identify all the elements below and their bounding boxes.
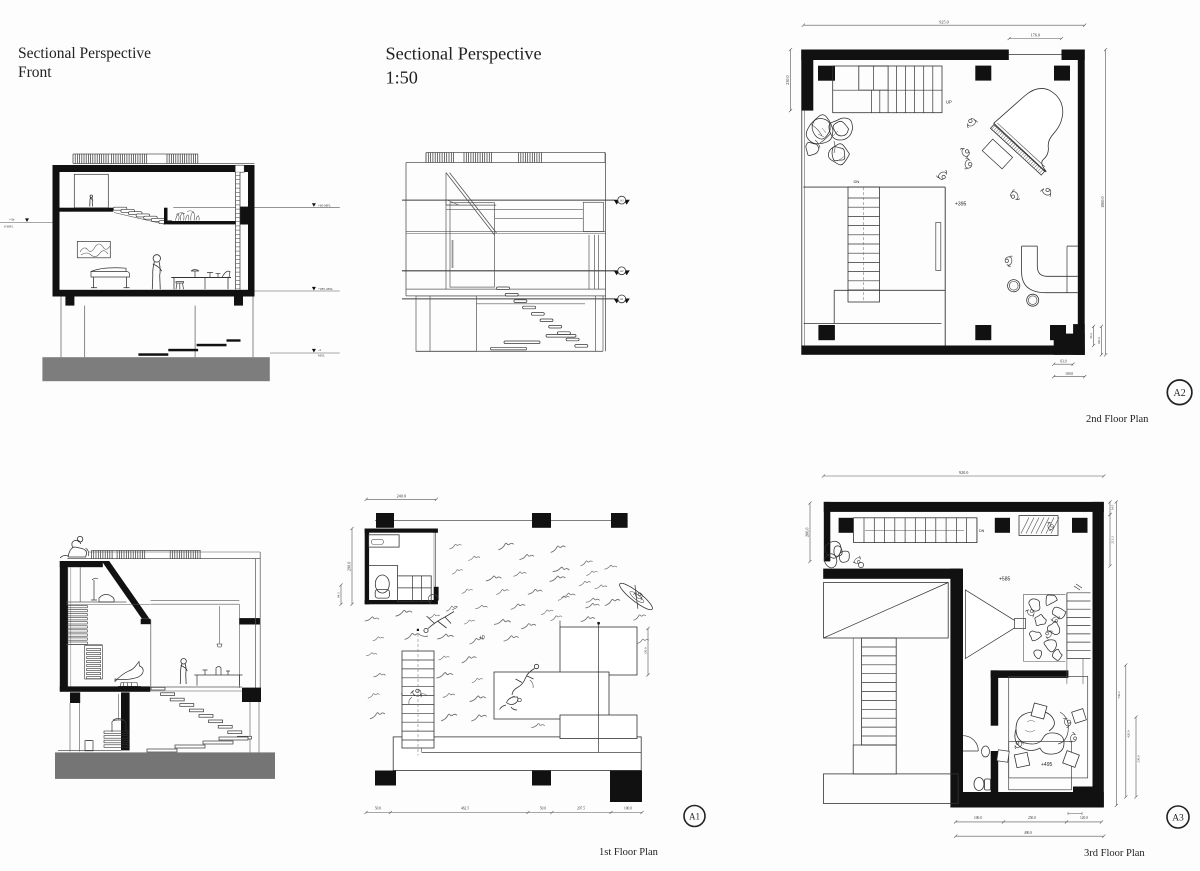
- svg-text:MSL: MSL: [318, 354, 325, 358]
- svg-text:Front: Front: [18, 64, 52, 81]
- svg-text:50.0: 50.0: [540, 807, 546, 811]
- svg-text:130.0: 130.0: [644, 647, 648, 655]
- svg-text:420.0: 420.0: [1126, 730, 1130, 738]
- svg-text:290.0: 290.0: [347, 562, 352, 571]
- svg-text:490.0: 490.0: [1024, 831, 1032, 835]
- svg-text:1st Floor Plan: 1st Floor Plan: [599, 847, 659, 858]
- svg-text:A1: A1: [689, 812, 700, 822]
- svg-text:+60 MFL: +60 MFL: [318, 203, 331, 207]
- svg-text:213.3: 213.3: [1111, 536, 1115, 544]
- svg-text:920.0: 920.0: [959, 470, 968, 475]
- svg-text:730.2: 730.2: [1117, 691, 1121, 699]
- svg-text:240.0: 240.0: [397, 494, 406, 499]
- svg-text:A2: A2: [620, 269, 624, 273]
- svg-text:462.5: 462.5: [461, 807, 469, 811]
- svg-text:+3h: +3h: [9, 218, 15, 222]
- svg-text:A1: A1: [620, 297, 624, 301]
- svg-text:250.0: 250.0: [1028, 816, 1036, 820]
- svg-text:54.5: 54.5: [1111, 504, 1115, 510]
- svg-text:+585: +585: [999, 577, 1010, 583]
- svg-text:30.4: 30.4: [1089, 333, 1093, 339]
- svg-text:A3: A3: [1172, 814, 1184, 824]
- svg-text:63.0: 63.0: [1060, 359, 1066, 363]
- svg-text:100.0: 100.0: [1097, 337, 1101, 345]
- svg-text:84.5: 84.5: [337, 592, 341, 598]
- svg-text:100.0: 100.0: [974, 816, 982, 820]
- svg-text:+495: +495: [1041, 762, 1052, 768]
- svg-text:2nd Floor Plan: 2nd Floor Plan: [1086, 414, 1149, 425]
- svg-text:DN: DN: [979, 529, 985, 533]
- svg-text:230.0: 230.0: [1137, 755, 1141, 763]
- svg-text:0 MFL: 0 MFL: [4, 225, 14, 229]
- svg-text:A3: A3: [620, 198, 624, 202]
- svg-text:100.0: 100.0: [624, 807, 632, 811]
- svg-text:1:50: 1:50: [386, 68, 418, 88]
- svg-text:-4: -4: [318, 348, 321, 352]
- svg-text:120.0: 120.0: [1080, 816, 1088, 820]
- svg-text:3rd Floor Plan: 3rd Floor Plan: [1084, 848, 1145, 859]
- svg-text:925.0: 925.0: [939, 19, 948, 24]
- svg-text:Sectional Perspective: Sectional Perspective: [386, 44, 542, 64]
- svg-text:1060.0: 1060.0: [1100, 196, 1105, 208]
- svg-text:+0: +0: [479, 635, 485, 641]
- svg-text:DN: DN: [854, 179, 860, 184]
- svg-text:266.0: 266.0: [804, 528, 809, 537]
- svg-text:UP: UP: [946, 100, 952, 105]
- svg-text:207.5: 207.5: [577, 807, 585, 811]
- svg-text:100.0: 100.0: [1065, 372, 1073, 376]
- svg-text:+395: +395: [955, 202, 966, 208]
- svg-text:230.0: 230.0: [785, 75, 790, 84]
- svg-text:176.0: 176.0: [1031, 33, 1040, 38]
- svg-text:Sectional Perspective: Sectional Perspective: [18, 45, 151, 62]
- svg-text:+0FL MSL: +0FL MSL: [318, 287, 333, 291]
- svg-text:50.0: 50.0: [375, 807, 381, 811]
- svg-text:A2: A2: [1173, 388, 1185, 399]
